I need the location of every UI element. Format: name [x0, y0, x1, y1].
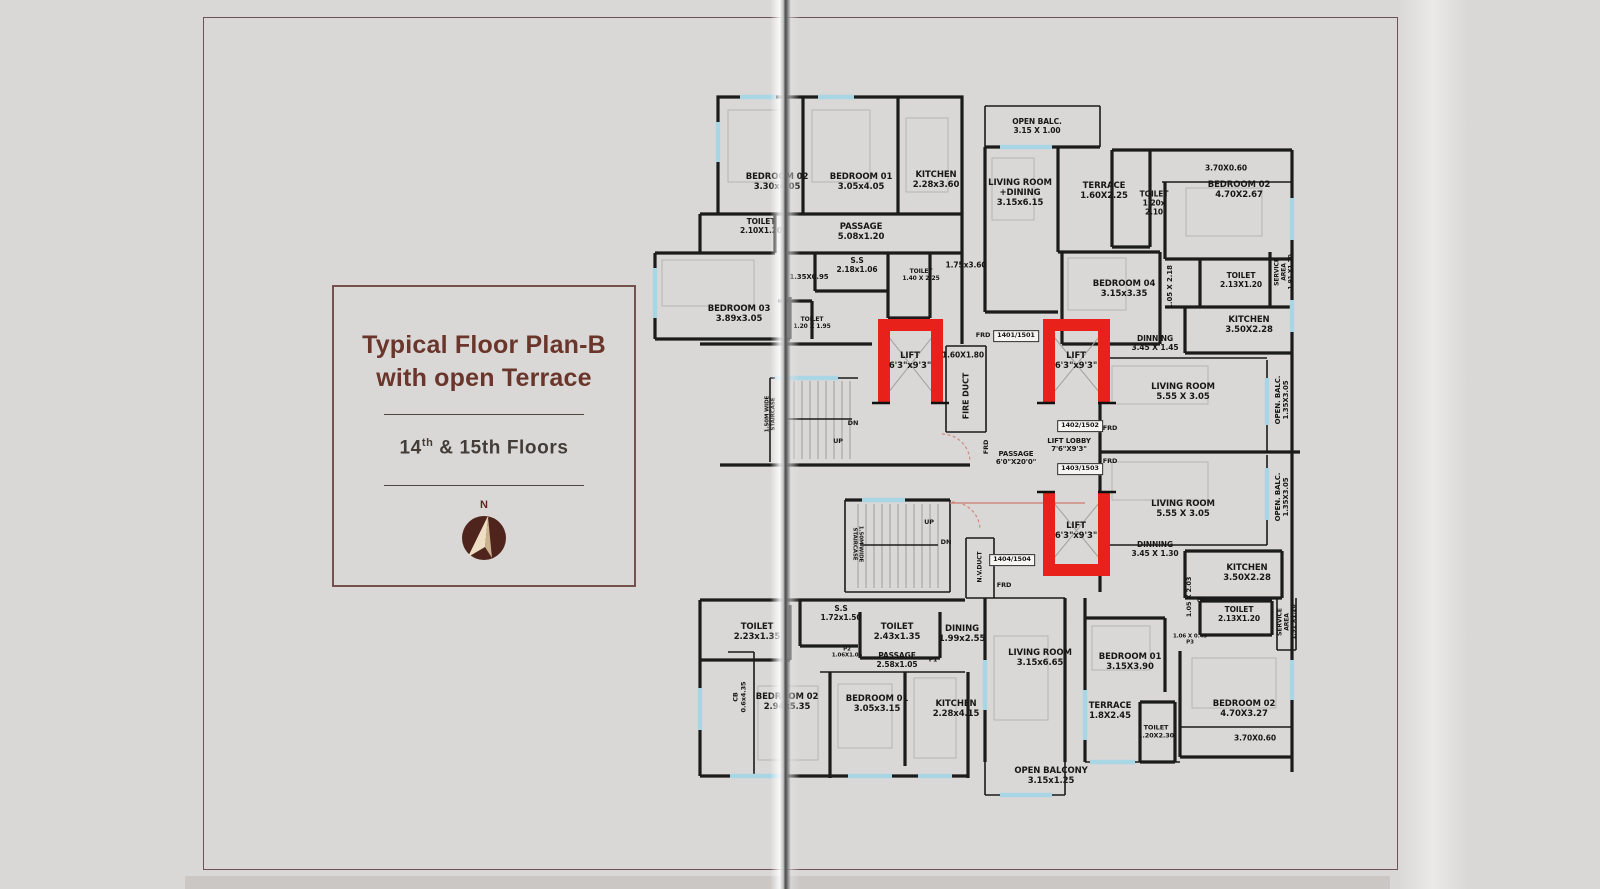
lift-door-jambs	[872, 403, 1116, 492]
floor-plan-drawing	[0, 0, 1600, 889]
door-swing-arcs	[942, 434, 980, 530]
main-walls	[655, 97, 1300, 778]
brochure-page: Typical Floor Plan-B with open Terrace 1…	[0, 0, 1600, 889]
lift-shaft-highlight	[884, 325, 1104, 570]
lift-shaft-cross	[884, 331, 1104, 564]
stair-treads	[786, 381, 938, 588]
window-strips	[655, 97, 1292, 795]
